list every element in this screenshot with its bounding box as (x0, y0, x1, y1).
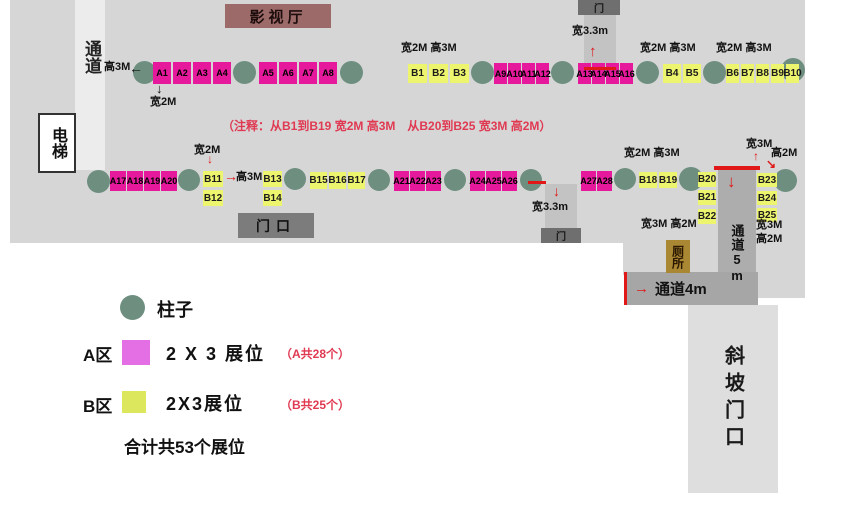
booth-B13: B13 (263, 171, 282, 187)
dimension-label-10: 宽2M 高3M (624, 148, 680, 159)
booth-B2: B2 (429, 64, 448, 83)
dimension-label-2: 宽2M (150, 97, 176, 108)
up-arrow-top-door: ↑ (589, 44, 597, 59)
booth-B10: B10 (786, 64, 799, 83)
ramp-entrance: 斜坡门口 (688, 305, 778, 493)
booth-A18: A18 (127, 171, 143, 191)
booth-B7: B7 (741, 64, 754, 83)
legend-a-size-label: 2 X 3 展位 (166, 340, 265, 366)
legend-b-swatch (122, 391, 146, 413)
pillar-14 (520, 169, 542, 191)
booth-A16: A16 (620, 63, 633, 84)
right-arrow-b11-height: → (224, 169, 238, 183)
down-arrow-b11-width: ↓ (207, 153, 213, 165)
booth-B16: B16 (329, 172, 346, 189)
left-arrow-pillar: ← (129, 61, 143, 75)
legend-a-count-label: （A共28个） (280, 345, 350, 362)
booth-B18: B18 (639, 172, 657, 188)
booth-B20: B20 (698, 172, 716, 187)
down-arrow-a1-width: ↓ (156, 82, 163, 95)
booth-B4: B4 (663, 64, 681, 83)
pillar-15 (614, 168, 636, 190)
pillar-12 (368, 169, 390, 191)
up-arrow-b23-width: ↑ (753, 150, 759, 162)
ramp-entrance-label: 斜坡门口 (719, 345, 748, 453)
floor-plan-canvas: 通道 电梯 影视厅 门口 门 门 通道5m → 通道4m 厕所 斜坡门口 （注释… (0, 0, 851, 509)
booth-A6: A6 (279, 62, 297, 84)
diag-arrow-b23-height: ↘ (766, 158, 776, 170)
booth-A7: A7 (299, 62, 317, 84)
booth-A22: A22 (410, 171, 425, 191)
booth-A19: A19 (144, 171, 160, 191)
booth-B23: B23 (757, 173, 777, 187)
dimension-label-5: 宽2M 高3M (640, 43, 696, 54)
red-line-3 (714, 166, 760, 170)
dimension-label-1: 高3M (104, 62, 130, 73)
dimension-label-8: 高3M (236, 172, 262, 183)
booth-B19: B19 (659, 172, 677, 188)
pillar-4 (471, 61, 494, 84)
booth-A21: A21 (394, 171, 409, 191)
pillar-17 (774, 169, 797, 192)
red-line-4 (624, 272, 627, 305)
down-arrow-corridor5m: ↓ (727, 173, 736, 190)
booth-B15: B15 (310, 172, 327, 189)
dimension-label-13: 宽3M 高2M (641, 219, 697, 230)
booth-B21: B21 (698, 190, 716, 205)
booth-A23: A23 (426, 171, 441, 191)
booth-B14: B14 (263, 190, 282, 206)
booth-A5: A5 (259, 62, 277, 84)
booth-A12: A12 (536, 63, 549, 84)
pillar-13 (444, 169, 466, 191)
booth-B3: B3 (450, 64, 469, 83)
booth-A25: A25 (486, 171, 501, 191)
pillar-3 (340, 61, 363, 84)
size-note: （注释：从B1到B19 宽2M 高3M 从B20到B25 宽3M 高2M） (222, 117, 551, 134)
booth-A10: A10 (508, 63, 521, 84)
pillar-10 (178, 169, 200, 191)
legend-b-zone-label: B区 (83, 392, 112, 417)
red-line-2 (528, 181, 546, 184)
booth-B1: B1 (408, 64, 427, 83)
legend-b-size-label: 2X3展位 (166, 390, 244, 416)
booth-A27: A27 (581, 171, 596, 191)
cinema-hall: 影视厅 (225, 4, 331, 28)
booth-A26: A26 (502, 171, 517, 191)
corridor-5m-label: 通道5m (722, 205, 752, 303)
pillar-5 (551, 61, 574, 84)
booth-A11: A11 (522, 63, 535, 84)
toilet-room: 厕所 (666, 240, 690, 273)
left-corridor-label: 通道 (78, 40, 104, 74)
pillar-7 (703, 61, 726, 84)
pillar-11 (284, 168, 306, 190)
booth-B17: B17 (348, 172, 365, 189)
booth-B9: B9 (771, 64, 784, 83)
dimension-label-3: 宽2M 高3M (401, 43, 457, 54)
booth-B12: B12 (203, 190, 223, 206)
booth-B6: B6 (726, 64, 739, 83)
legend-pillar-label: 柱子 (157, 296, 193, 322)
dimension-label-9: 宽3.3m (532, 202, 568, 213)
dimension-label-4: 宽3.3m (572, 26, 608, 37)
booth-A20: A20 (161, 171, 177, 191)
booth-B8: B8 (756, 64, 769, 83)
booth-A17: A17 (110, 171, 126, 191)
elevator-room: 电梯 (38, 113, 76, 173)
dimension-label-14: 宽3M (756, 220, 782, 231)
down-arrow-bottom-door: ↓ (553, 184, 560, 198)
floor-extension-toilet-area (623, 243, 805, 275)
booth-A2: A2 (173, 62, 191, 84)
pillar-6 (636, 61, 659, 84)
booth-A8: A8 (319, 62, 337, 84)
dimension-label-11: 宽3M (746, 139, 772, 150)
booth-B24: B24 (757, 191, 777, 205)
left-corridor (75, 0, 105, 170)
entrance-doorway: 门口 (238, 213, 314, 238)
legend-pillar-icon (120, 295, 145, 320)
booth-A4: A4 (213, 62, 231, 84)
dimension-label-6: 宽2M 高3M (716, 43, 772, 54)
right-arrow-corridor4m-icon: → (634, 280, 649, 297)
legend-total-label: 合计共53个展位 (124, 433, 245, 458)
legend-a-zone-label: A区 (83, 341, 112, 366)
pillar-9 (87, 170, 110, 193)
floor-extension-right (752, 275, 805, 298)
booth-A3: A3 (193, 62, 211, 84)
legend-b-count-label: （B共25个） (280, 396, 350, 413)
legend-a-swatch (122, 340, 150, 365)
red-line-1 (584, 67, 616, 70)
booth-A9: A9 (494, 63, 507, 84)
bottom-door: 门 (541, 228, 581, 243)
booth-B5: B5 (683, 64, 701, 83)
dimension-label-15: 高2M (756, 234, 782, 245)
top-door: 门 (578, 0, 620, 15)
booth-A24: A24 (470, 171, 485, 191)
booth-B22: B22 (698, 209, 716, 224)
pillar-2 (233, 61, 256, 84)
booth-A28: A28 (597, 171, 612, 191)
booth-B11: B11 (203, 171, 223, 187)
corridor-4m-label: 通道4m (655, 278, 707, 299)
